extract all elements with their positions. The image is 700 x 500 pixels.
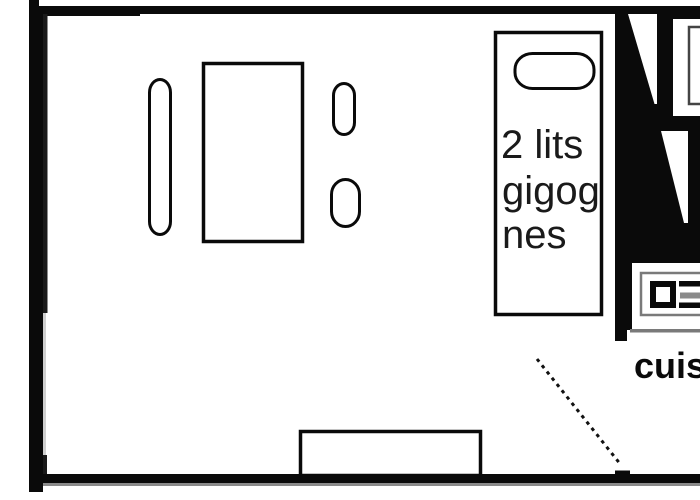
svg-text:cuisine: cuisine — [634, 345, 700, 386]
svg-text:gigog: gigog — [502, 169, 600, 213]
svg-text:2 lits: 2 lits — [501, 123, 583, 167]
svg-text:nes: nes — [502, 213, 567, 257]
